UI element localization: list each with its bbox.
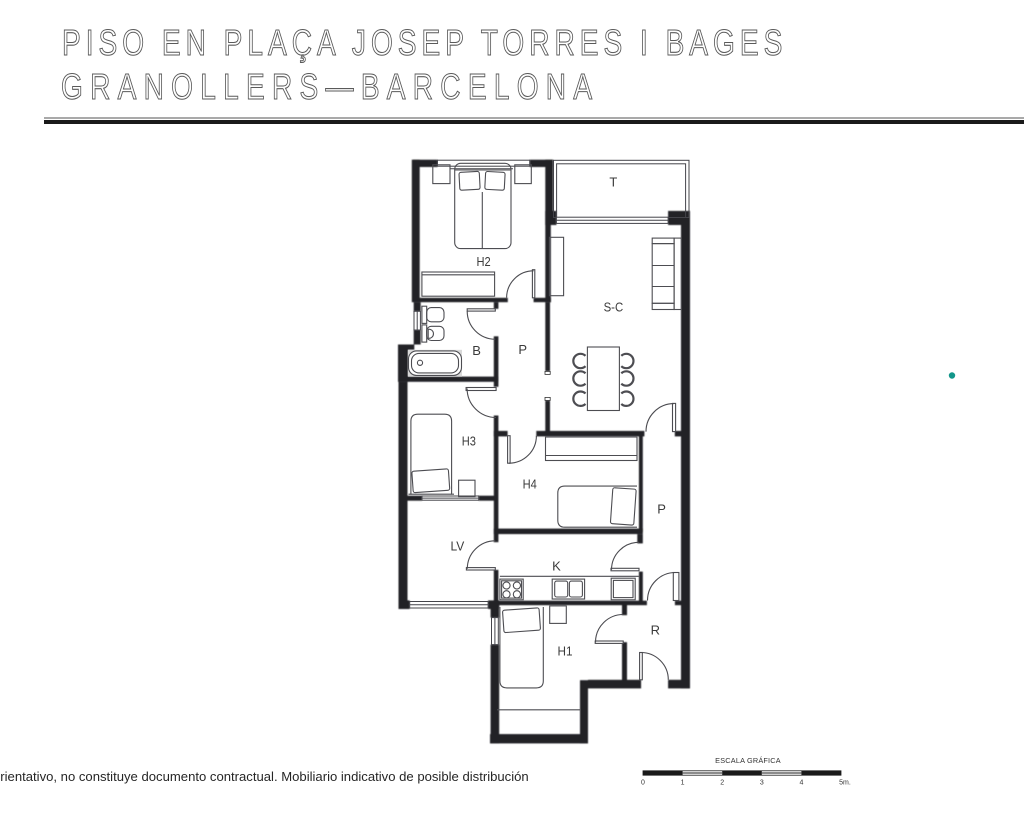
- svg-text:P: P: [657, 501, 666, 516]
- svg-text:H3: H3: [462, 434, 476, 449]
- svg-text:R: R: [651, 622, 660, 637]
- svg-text:H4: H4: [523, 477, 537, 492]
- svg-text:H2: H2: [477, 254, 491, 269]
- svg-text:2: 2: [720, 780, 724, 787]
- svg-text:5m.: 5m.: [839, 780, 851, 787]
- svg-text:P: P: [518, 342, 527, 357]
- svg-text:1: 1: [681, 780, 685, 787]
- svg-text:ESCALA GRÁFICA: ESCALA GRÁFICA: [715, 756, 781, 765]
- svg-text:4: 4: [799, 780, 803, 787]
- svg-text:B: B: [472, 343, 481, 358]
- svg-text:LV: LV: [451, 539, 465, 554]
- svg-text:T: T: [609, 175, 617, 190]
- svg-text:K: K: [552, 558, 561, 573]
- svg-text:H1: H1: [558, 644, 573, 659]
- svg-text:S-C: S-C: [604, 300, 624, 315]
- svg-text:0: 0: [641, 780, 645, 787]
- svg-text:3: 3: [760, 780, 764, 787]
